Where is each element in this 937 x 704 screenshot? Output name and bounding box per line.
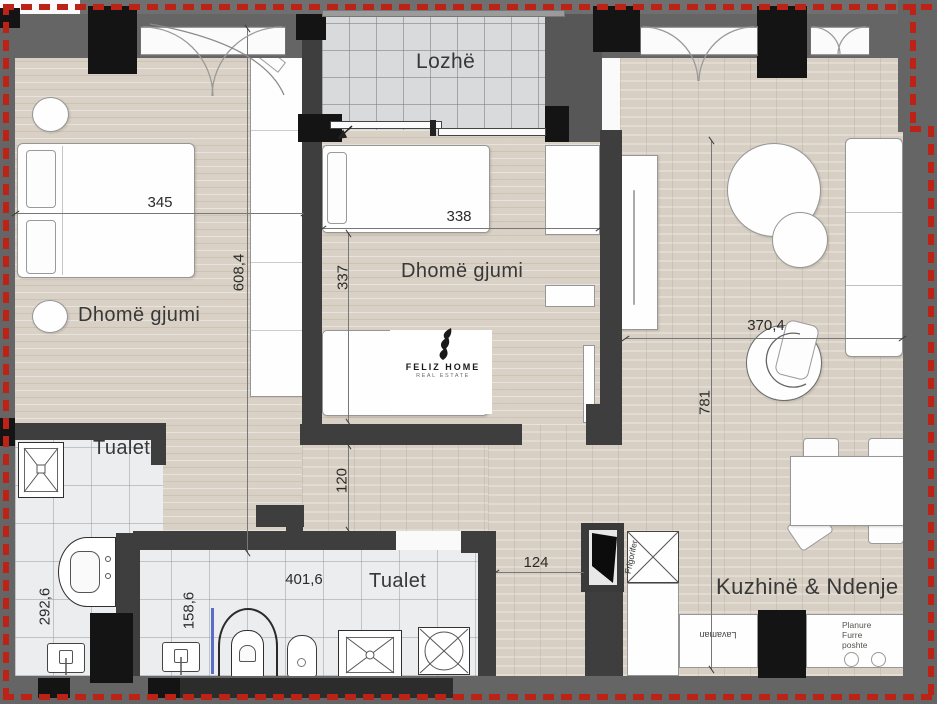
kitchen-counter-sink (679, 614, 758, 668)
dim-158: 158,6 (181, 579, 198, 643)
dim-345: 345 (128, 194, 192, 211)
room-label-bedroom2: Dhomë gjumi (401, 260, 523, 283)
dim-124: 124 (504, 554, 568, 571)
brand-name: FELIZ HOME (400, 362, 486, 372)
dim-line-345 (15, 213, 305, 214)
wall-bedrooms-separator (302, 14, 322, 430)
burner (871, 652, 886, 667)
dim-337: 337 (335, 246, 352, 310)
washing-machine (418, 627, 470, 675)
dim-370: 370,4 (734, 317, 798, 334)
column (90, 613, 133, 683)
slider-handle (430, 120, 436, 136)
wall-bedroom2-right (600, 130, 622, 426)
wardrobe-shelf-line (251, 130, 304, 131)
burner (844, 652, 859, 667)
sofa (845, 138, 903, 357)
loggia-slider-window (330, 121, 442, 129)
shelf-bedroom2 (545, 285, 595, 307)
boundary-right-upper (910, 4, 916, 130)
room-label-bedroom1: Dhomë gjumi (78, 304, 200, 327)
wardrobe-shelf-line (251, 262, 304, 263)
wardrobe-shelf-line (251, 330, 304, 331)
wall-bedroom2-bottom (300, 424, 522, 445)
stool (32, 300, 68, 333)
wall-right-upper (898, 0, 937, 132)
dim-line-124 (495, 572, 585, 573)
wall-bath2-top (133, 531, 396, 550)
dim-401: 401,6 (272, 571, 336, 588)
dim-line-338 (322, 228, 600, 229)
column (88, 6, 137, 74)
dim-120: 120 (334, 449, 351, 513)
toilet-bowl (70, 551, 100, 593)
wardrobe-bedroom1 (250, 32, 305, 397)
round-table-small (772, 212, 828, 268)
boundary-left (3, 4, 9, 700)
room-label-loggia: Lozhë (416, 50, 475, 74)
window-bedroom1 (140, 26, 286, 56)
stove-label: Planure Furre poshte (842, 620, 886, 650)
bidet-drain (297, 658, 306, 667)
room-label-bathroom1: Tualet (93, 437, 150, 460)
sofa-cushion-line (846, 212, 902, 213)
shower-tray-inner (24, 448, 58, 492)
sink-basin (174, 649, 188, 663)
dim-292: 292,6 (37, 575, 54, 639)
shower-tray-inner (346, 637, 394, 673)
pillow (26, 220, 56, 274)
wall-bath2-right (478, 531, 496, 676)
sink-basin (59, 650, 73, 664)
column (757, 6, 807, 78)
dim-line-370 (625, 338, 903, 339)
toilet-bowl (239, 645, 256, 662)
sofa-cushion-line (846, 285, 902, 286)
room-label-bathroom2: Tualet (369, 570, 426, 593)
pillow (26, 150, 56, 208)
wall-bath1-jamb (151, 423, 166, 465)
side-table (32, 97, 69, 132)
column (296, 14, 326, 40)
room-label-kitchen-living: Kuzhinë & Ndenje (716, 574, 899, 600)
floor-plan: FELIZ HOME REAL ESTATE Lavaman Frigorife… (0, 0, 937, 704)
entry-door-opening (589, 530, 617, 585)
cabinet-handle (633, 190, 635, 305)
boundary-top (3, 4, 934, 10)
loggia-slider-window (438, 128, 546, 136)
wall-door-jamb (461, 531, 478, 553)
dim-781: 781 (697, 371, 714, 435)
sink-label: Lavaman (687, 630, 749, 640)
dining-table (790, 456, 912, 526)
window-living-left (640, 26, 758, 56)
loggia-railing (322, 10, 565, 17)
wall-bedroom2-corner (586, 404, 622, 445)
flame-icon (434, 328, 456, 360)
glass-door (211, 608, 214, 674)
pillow (327, 152, 347, 224)
boundary-right-lower (928, 126, 934, 700)
brand-tagline: REAL ESTATE (400, 373, 486, 379)
dim-608: 608,4 (231, 241, 248, 305)
column (593, 6, 640, 52)
window-living-right (810, 26, 870, 56)
dim-338: 338 (427, 208, 491, 225)
column (758, 610, 806, 678)
wall-below-entry-door (585, 592, 623, 676)
wardrobe-bedroom2 (545, 145, 600, 235)
bed-line (62, 146, 63, 275)
tv-cabinet (618, 155, 658, 330)
kitchen-counter-left (627, 583, 679, 676)
column (545, 106, 569, 142)
brand-logo: FELIZ HOME REAL ESTATE (400, 326, 486, 388)
boundary-bottom (3, 694, 934, 700)
bidet (287, 635, 317, 677)
